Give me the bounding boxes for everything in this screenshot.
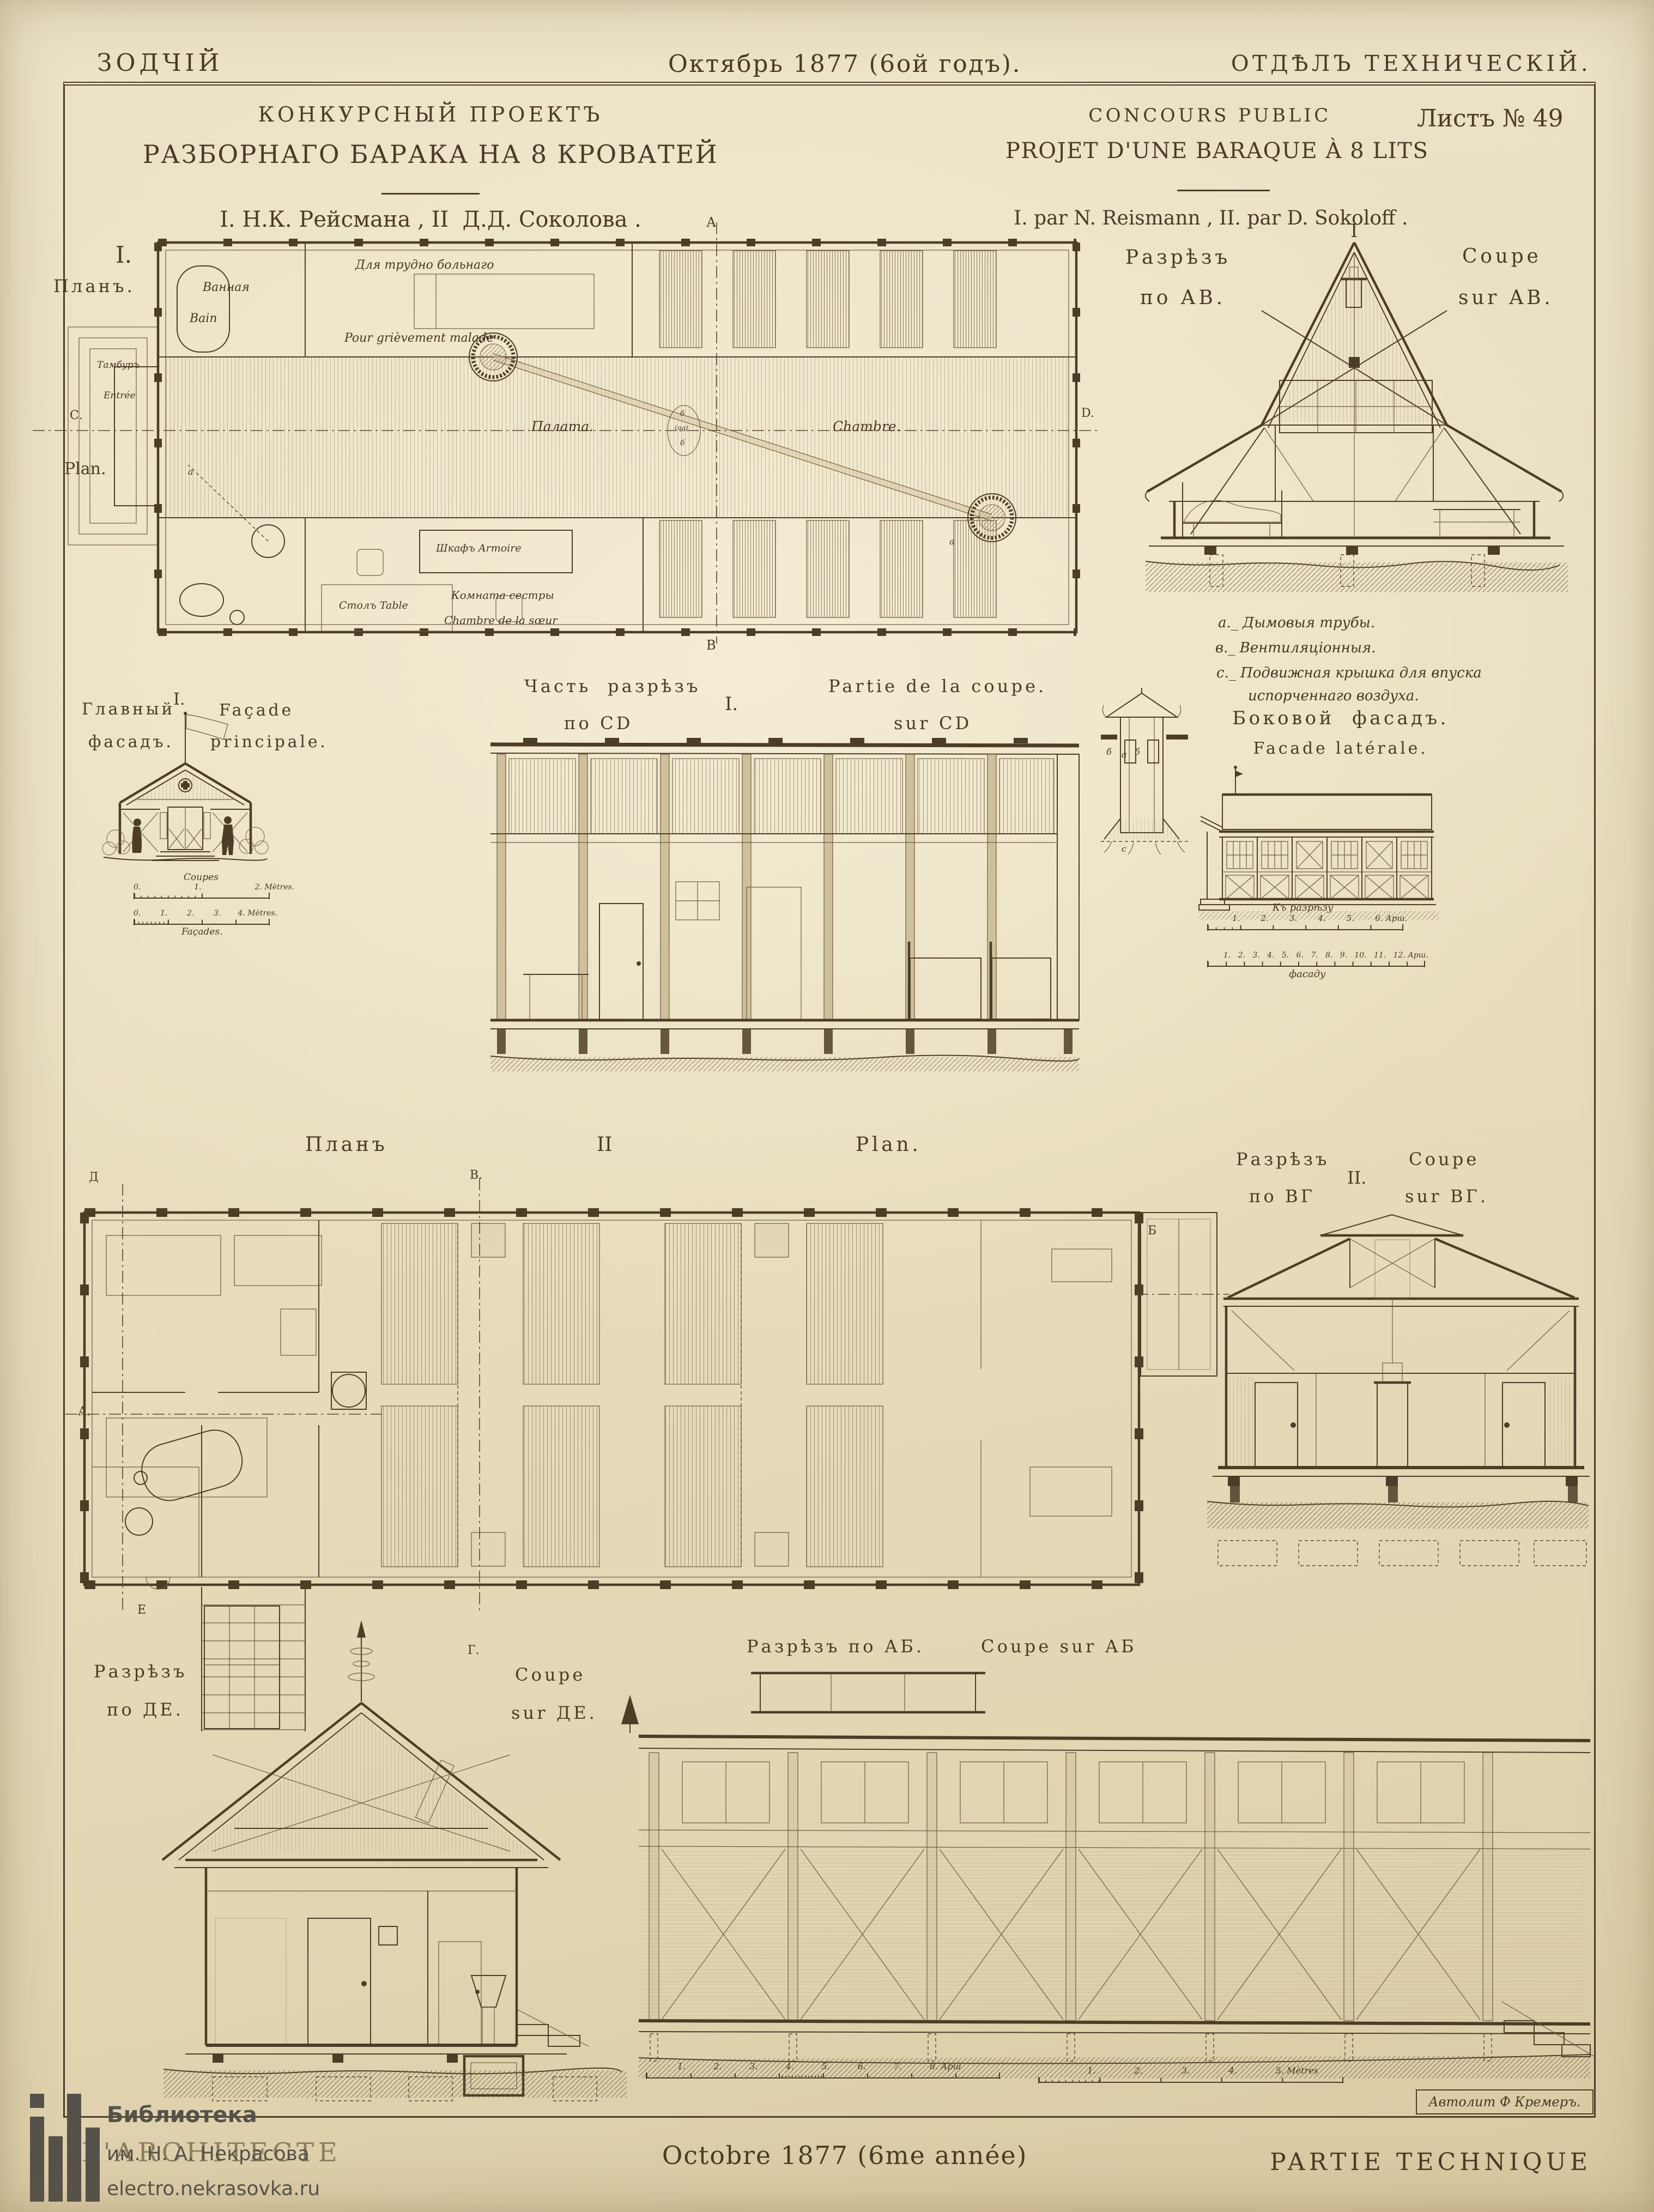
- facade-main-drawing: [104, 711, 267, 880]
- plan2-numeral: II: [597, 1134, 612, 1156]
- coupe-vg-title-fr-1: Coupe: [1409, 1149, 1479, 1169]
- watermark-line-2: им. Н. А. Некрасова: [107, 2143, 310, 2165]
- tower-letter-c: c: [1122, 844, 1126, 854]
- coupe-cd-drawing: [490, 740, 1079, 1072]
- coupe-cd-title-fr-2: sur CD: [894, 713, 972, 734]
- scalebar-facades-ticks: 0. 1. 2. 3. 4. Mètres.: [134, 909, 270, 918]
- facade-main-scalebar-coupes: Coupes 0. 1. 2. Mètres.: [134, 872, 270, 900]
- plan2-title-fr: Plan.: [856, 1134, 922, 1156]
- plan1-letter-pipe1: а: [949, 536, 955, 547]
- authors-ru: I. Н.К. Рейсмана , II Д.Д. Соколова .: [180, 207, 681, 232]
- plan1-letter-pipe2: а: [188, 466, 193, 477]
- plan1-drawing: [65, 236, 1079, 639]
- competition-title-ru-2: РАЗБОРНАГО БАРАКА НА 8 КРОВАТЕЙ: [131, 140, 730, 169]
- plan2-letter-V: В.: [470, 1168, 482, 1182]
- ab2-arshin-ticks: 1. 2. 3. 4. 5. 6. 7. 8. Арш: [677, 2061, 1000, 2071]
- title-rule-ru: [381, 193, 480, 195]
- watermark-line-3: electro.nekrasovka.ru: [107, 2178, 320, 2200]
- plan1-letter-D: D.: [1081, 407, 1094, 420]
- coupe-vg-numeral: II.: [1347, 1167, 1366, 1188]
- coupe-ab-legend-4: испорченнаго воздуха.: [1248, 688, 1419, 704]
- library-logo-bar: [67, 2094, 81, 2202]
- coupe-ab-drawing: [1139, 234, 1575, 605]
- coupe-cd-title-fr-1: Partie de la coupe.: [828, 676, 1046, 696]
- journal-name: ЗОДЧІЙ: [97, 49, 223, 77]
- plan2-title-ru: Планъ: [305, 1134, 387, 1156]
- watermark-line-1: Библиотека: [107, 2102, 257, 2128]
- coupe-ab-legend-2: в._ Вентиляціонныя.: [1215, 640, 1376, 656]
- facade-lat-sb2-ticks: 1. 2. 3. 4. 5. 6. 7. 8. 9. 10. 11. 12. А…: [1223, 951, 1425, 960]
- facade-lat-sb1-ticks: 1. 2. 3. 4. 5. 6. Арш.: [1232, 913, 1403, 923]
- authors-fr: I. par N. Reismann , II. par D. Sokoloff…: [1014, 207, 1395, 229]
- lithographer-box: Автолит Ф Кремеръ.: [1416, 2089, 1594, 2114]
- coupe-vg-drawing: [1136, 1207, 1594, 1589]
- plan1-label-tambour-ru: Тамбуръ: [97, 360, 140, 371]
- plan1-oval-b2: б: [680, 439, 684, 447]
- coupe-ab2-title-fr: Coupe sur АБ: [981, 1636, 1137, 1657]
- facade-lat-drawing: [1199, 762, 1441, 925]
- coupe-vg-title-fr-2: sur ВГ.: [1405, 1186, 1488, 1207]
- coupe-ab-legend-3: c._ Подвижная крышка для впуска: [1216, 665, 1482, 681]
- facade-main-numeral: I.: [173, 690, 185, 709]
- coupe-cd-vent-tower: [1101, 688, 1188, 857]
- library-logo-bar: [30, 2117, 44, 2202]
- plan1-label-sister-ru: Комната сестры: [451, 589, 554, 602]
- plan1-label-sister-fr: Chambre de la sœur: [444, 614, 558, 627]
- plan1-label-bath-ru: Ванная: [203, 281, 250, 294]
- plan1-label-severe-ru: Для трудно больнаго: [355, 258, 494, 272]
- plan2-letter-D: Д: [89, 1171, 99, 1184]
- plan1-letter-A: А: [706, 215, 716, 230]
- library-logo-bar: [86, 2128, 100, 2202]
- facade-lat-scalebar-coupe: Къ разрѣзу 1. 2. 3. 4. 5. 6. Арш.: [1207, 902, 1403, 932]
- competition-title-ru-1: КОНКУРСНЫЙ ПРОЕКТЪ: [180, 102, 681, 126]
- plan1-label-severe-fr: Pour grièvement malade: [344, 331, 494, 345]
- facade-lat-scalebar-facade: 1. 2. 3. 4. 5. 6. 7. 8. 9. 10. 11. 12. А…: [1207, 951, 1425, 980]
- coupe-ab2-scalebar-arshin: 1. 2. 3. 4. 5. 6. 7. 8. Арш: [646, 2061, 1000, 2080]
- facade-lat-sb2-label: фасаду: [1289, 968, 1425, 980]
- title-rule-fr: [1177, 190, 1270, 191]
- scalebar-coupes-label: Coupes: [184, 872, 270, 883]
- coupe-ab2-title-ru: Разрѣзъ по АБ.: [747, 1636, 924, 1657]
- library-logo: [30, 2090, 101, 2202]
- plan1-letter-B: В: [706, 638, 716, 653]
- plan1-label-tambour-fr: Entrée: [104, 390, 135, 401]
- coupe-de-drawing: [153, 1599, 643, 2112]
- plan1-oval-b1: б: [680, 410, 684, 418]
- facade-main-scalebar-facades: 0. 1. 2. 3. 4. Mètres. Façades.: [134, 909, 270, 937]
- coupe-ab2-drawing: [632, 1666, 1597, 2081]
- scalebar-facades-label: Façades.: [181, 926, 270, 937]
- coupe-cd-title-ru-2: по CD: [564, 713, 633, 734]
- plan1-label-ward-ru: Палата.: [531, 419, 593, 434]
- tower-letter-b2: б: [1135, 747, 1140, 757]
- footer-section-fr: PARTIE TECHNIQUE: [1264, 2148, 1591, 2176]
- coupe-ab-legend-1: a._ Дымовыя трубы.: [1218, 615, 1375, 631]
- plan1-label-wardrobe: Шкафъ Armoire: [436, 542, 522, 554]
- library-logo-bar: [30, 2094, 44, 2108]
- coupe-ab2-scalebar-metres: 1. 2. 3. 4. 5. Mètres: [1038, 2065, 1343, 2084]
- plan1-oval-mid: (qq): [675, 424, 688, 432]
- facade-lat-sb1-label: Къ разрѣзу: [1273, 902, 1403, 913]
- scalebar-coupes-ticks: 0. 1. 2. Mètres.: [134, 883, 270, 892]
- plan1-label-bath-fr: Bain: [190, 312, 217, 325]
- ab2-metres-ticks: 1. 2. 3. 4. 5. Mètres: [1087, 2065, 1343, 2076]
- coupe-cd-numeral: I.: [725, 693, 738, 715]
- plan1-label-table: Столъ Table: [339, 599, 408, 611]
- tower-letter-b1: б: [1106, 747, 1112, 757]
- facade-lat-title-fr: Facade latérale.: [1188, 739, 1493, 758]
- library-logo-bar: [49, 2136, 63, 2202]
- sheet-number: Листъ № 49: [1417, 105, 1591, 132]
- plan1-label-ward-fr: Chambre.: [833, 419, 901, 434]
- section-name: ОТДѢЛЪ ТЕХНИЧЕСКІЙ.: [1215, 51, 1591, 76]
- competition-title-fr-2: PROJET D'UNE BARAQUE À 8 LITS: [1005, 138, 1409, 163]
- coupe-cd-title-ru-1: Часть разрѣзъ: [524, 676, 701, 696]
- facade-lat-title-ru: Боковой фасадъ.: [1188, 707, 1493, 729]
- footer-date-fr: Octobre 1877 (6me année): [610, 2141, 1079, 2170]
- issue-date: Октябрь 1877 (6ой годъ).: [599, 50, 1090, 78]
- competition-title-fr-1: CONCOURS PUBLIC: [1085, 105, 1335, 126]
- coupe-vg-title-ru-2: по ВГ: [1249, 1186, 1315, 1207]
- journal-plate-page: ЗОДЧІЙ Октябрь 1877 (6ой годъ). ОТДѢЛЪ Т…: [0, 0, 1654, 2212]
- lithographer-credit: Автолит Ф Кремеръ.: [1428, 2094, 1580, 2110]
- coupe-vg-title-ru-1: Разрѣзъ: [1236, 1149, 1330, 1169]
- tower-letter-a: а: [1122, 749, 1127, 760]
